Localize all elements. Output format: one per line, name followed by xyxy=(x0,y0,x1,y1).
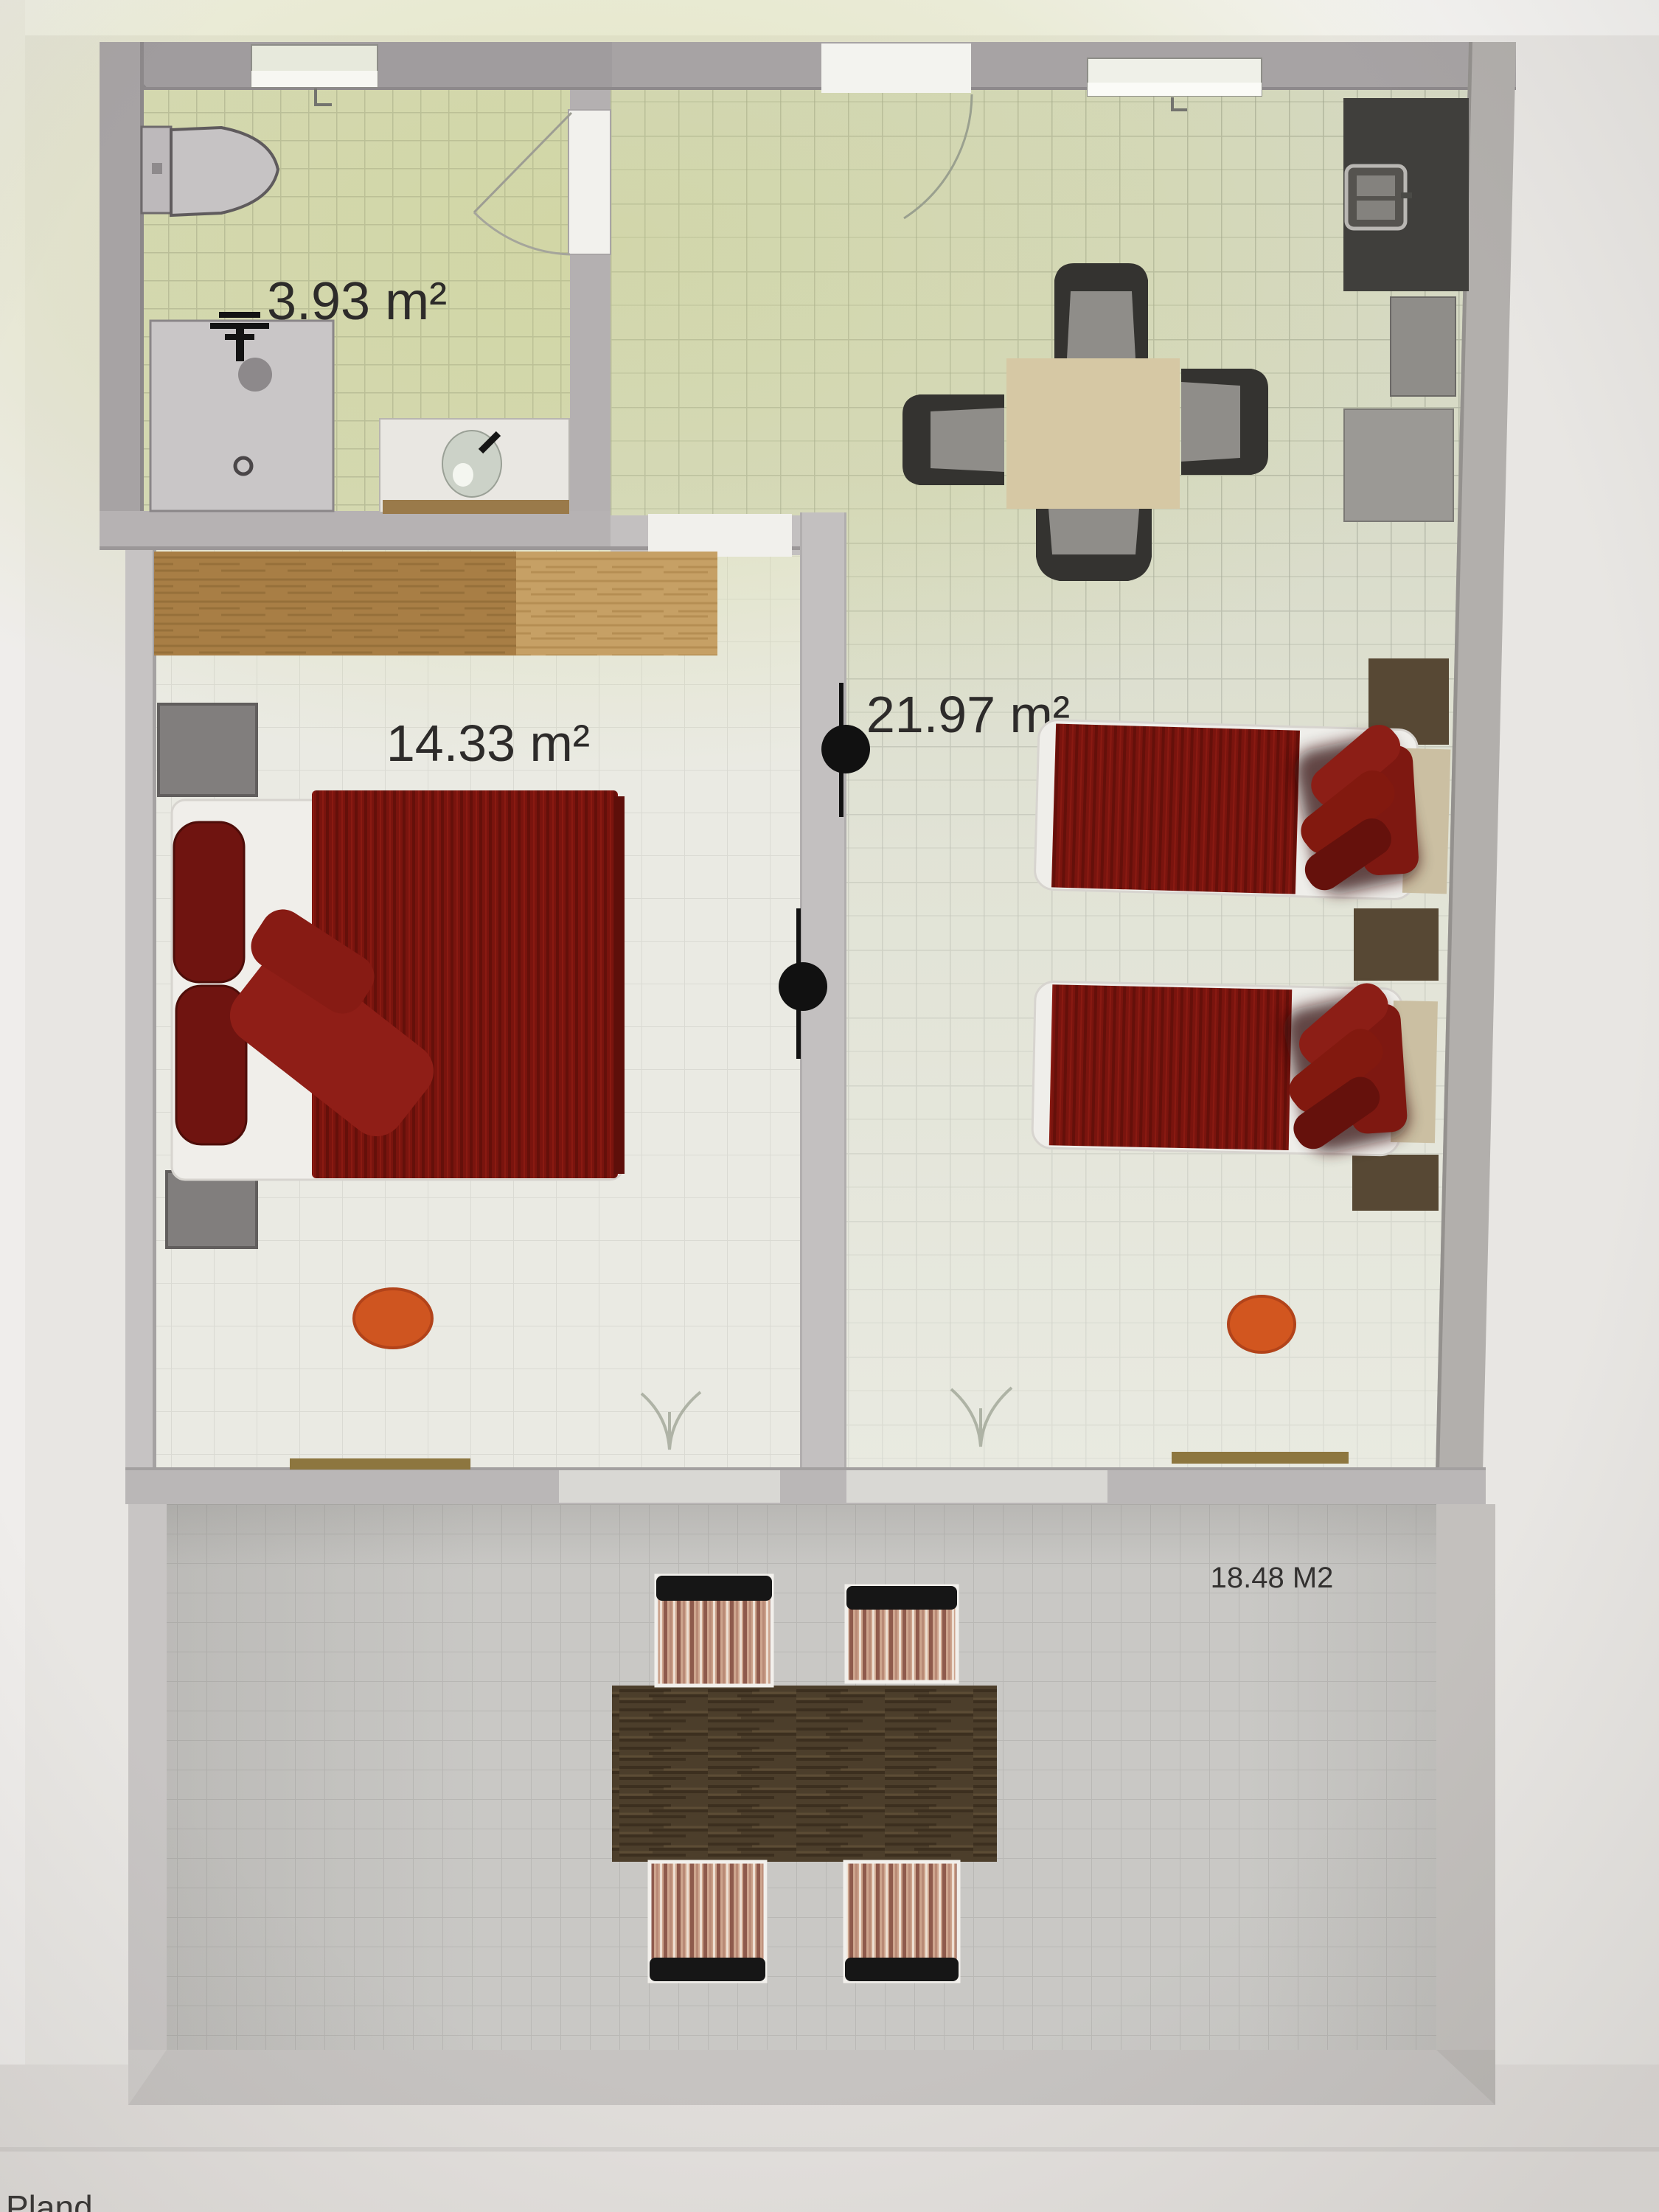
svg-text:Pland: Pland xyxy=(6,2188,93,2212)
